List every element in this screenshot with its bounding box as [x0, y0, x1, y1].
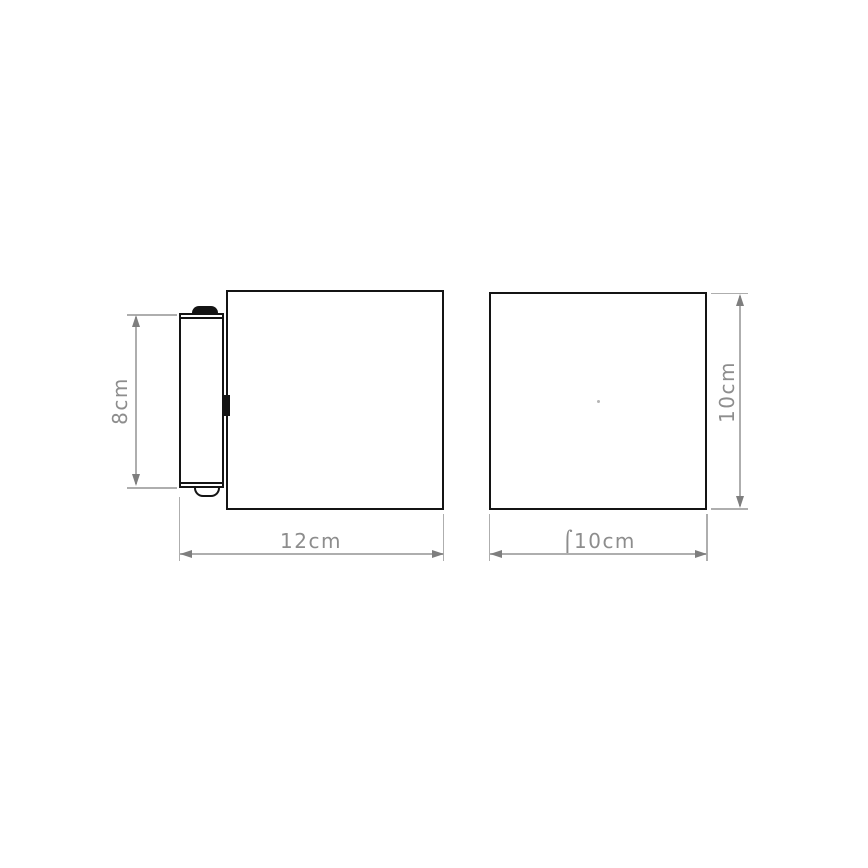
- arrowhead-left-icon: [180, 550, 192, 558]
- joint-notch: [224, 395, 230, 416]
- wall-mount-plate: [179, 313, 224, 488]
- arrowhead-down-icon: [132, 474, 140, 486]
- extension-line: [711, 508, 748, 510]
- side-view-body: [226, 290, 444, 510]
- plate-flange-top: [181, 317, 222, 319]
- arrowhead-down-icon: [736, 496, 744, 508]
- dimension-line: [135, 317, 137, 484]
- dimension-line: [179, 553, 444, 555]
- dimension-line: [739, 296, 741, 506]
- arrowhead-up-icon: [132, 315, 140, 327]
- plate-flange-bottom: [181, 482, 222, 484]
- mount-screw-top: [192, 306, 218, 313]
- arrowhead-right-icon: [695, 550, 707, 558]
- mount-screw-bottom: [194, 488, 220, 497]
- arrowhead-right-icon: [432, 550, 444, 558]
- dimension-diagram: 8cm 12cm 10cm ⌠10cm: [0, 0, 868, 868]
- dimension-label-diameter-10cm: ⌠10cm: [562, 531, 636, 551]
- dimension-label-8cm: 8cm: [110, 377, 130, 425]
- dimension-label-10cm: 10cm: [717, 361, 737, 423]
- extension-line: [127, 487, 177, 489]
- arrowhead-up-icon: [736, 294, 744, 306]
- dimension-label-12cm: 12cm: [280, 531, 342, 551]
- dimension-line: [489, 553, 707, 555]
- center-mark: [597, 400, 600, 403]
- arrowhead-left-icon: [490, 550, 502, 558]
